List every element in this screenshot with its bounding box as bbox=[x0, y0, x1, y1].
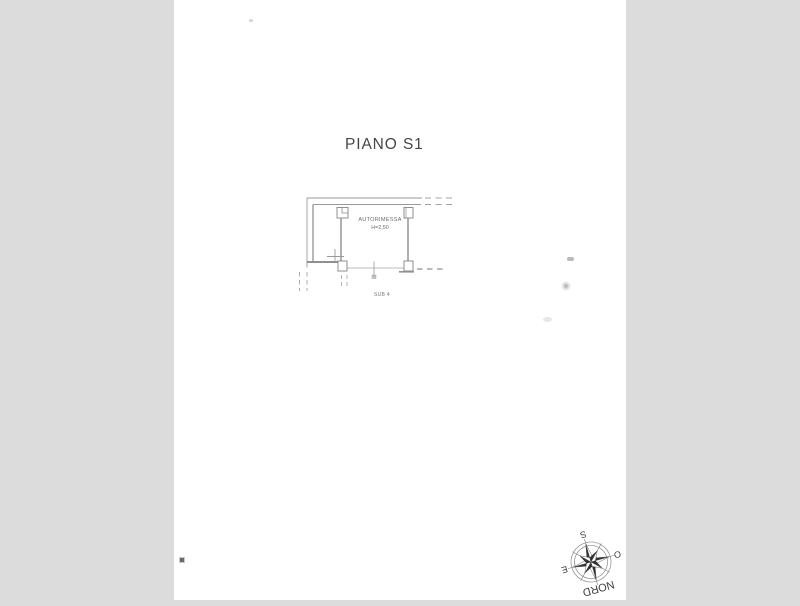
scan-artifact-dot bbox=[249, 19, 253, 22]
compass-east-label: E bbox=[560, 564, 569, 575]
plan-room-walls bbox=[307, 218, 414, 272]
floor-plan-drawing: AUTORIMESSA H=2,50 SUB 4 bbox=[295, 190, 455, 305]
scan-artifact-smudge bbox=[561, 281, 571, 291]
scan-artifact-dot bbox=[180, 558, 184, 562]
plan-door-tick bbox=[372, 262, 376, 279]
plan-dashed-continuations bbox=[300, 198, 455, 291]
scan-artifact-smudge bbox=[567, 257, 574, 261]
room-label: AUTORIMESSA bbox=[358, 217, 401, 223]
compass-west-label: O bbox=[613, 549, 623, 561]
scanned-plan-canvas: PIANO S1 bbox=[0, 0, 800, 600]
unit-label: SUB 4 bbox=[374, 292, 390, 298]
room-height-label: H=2,50 bbox=[371, 225, 389, 231]
compass-south-label: S bbox=[579, 529, 588, 540]
scan-artifact-smudge bbox=[543, 317, 552, 322]
page-title: PIANO S1 bbox=[345, 136, 424, 154]
plan-labels: AUTORIMESSA H=2,50 SUB 4 bbox=[358, 217, 401, 298]
